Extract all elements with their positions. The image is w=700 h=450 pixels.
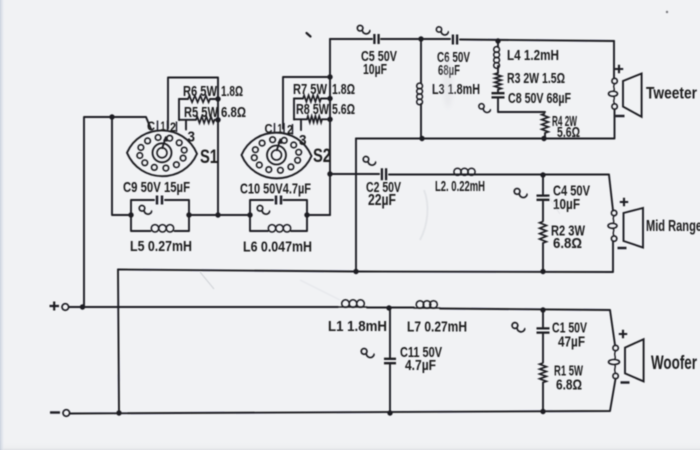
svg-text:C8 50V 68µF: C8 50V 68µF <box>508 91 571 107</box>
svg-text:R6 5W: R6 5W <box>183 84 217 100</box>
svg-text:5.6Ω: 5.6Ω <box>557 125 580 141</box>
svg-text:6.8Ω: 6.8Ω <box>556 377 582 394</box>
svg-text:L6 0.047mH: L6 0.047mH <box>243 239 312 256</box>
svg-text:Woofer: Woofer <box>651 352 697 374</box>
svg-text:6.8Ω: 6.8Ω <box>221 105 246 121</box>
svg-text:C: C <box>265 121 274 136</box>
svg-text:47µF: 47µF <box>558 334 585 351</box>
svg-text:C10 50V4.7µF: C10 50V4.7µF <box>240 181 311 198</box>
svg-text:L7 0.27mH: L7 0.27mH <box>407 319 467 336</box>
svg-text:1: 1 <box>161 119 166 134</box>
svg-text:3: 3 <box>299 132 307 149</box>
svg-text:C: C <box>147 119 156 134</box>
svg-text:S2: S2 <box>313 146 331 167</box>
svg-text:S1: S1 <box>200 147 218 168</box>
svg-text:L5 0.27mH: L5 0.27mH <box>130 238 192 255</box>
svg-text:Mid Range: Mid Range <box>646 218 700 235</box>
svg-text:R3 2W 1.5Ω: R3 2W 1.5Ω <box>507 71 565 87</box>
svg-text:R7 5W: R7 5W <box>293 82 327 98</box>
svg-text:Tweeter: Tweeter <box>646 85 697 103</box>
svg-text:6.8Ω: 6.8Ω <box>553 235 582 252</box>
svg-text:3: 3 <box>188 129 196 146</box>
svg-text:L3 1.8mH: L3 1.8mH <box>432 82 480 98</box>
svg-text:R5 5W: R5 5W <box>184 105 218 121</box>
svg-text:2: 2 <box>287 122 293 137</box>
svg-text:1.8Ω: 1.8Ω <box>221 84 243 100</box>
svg-text:2: 2 <box>170 120 176 135</box>
svg-text:5.6Ω: 5.6Ω <box>332 102 355 118</box>
svg-text:L1 1.8mH: L1 1.8mH <box>328 318 387 335</box>
svg-text:1.8Ω: 1.8Ω <box>332 82 355 98</box>
svg-text:1: 1 <box>278 121 283 136</box>
svg-text:10µF: 10µF <box>363 62 387 78</box>
svg-text:L4 1.2mH: L4 1.2mH <box>507 48 559 64</box>
svg-text:L2. 0.22mH: L2. 0.22mH <box>435 179 485 195</box>
svg-text:R8 5W: R8 5W <box>296 102 329 118</box>
svg-text:4.7µF: 4.7µF <box>405 357 436 374</box>
svg-text:22µF: 22µF <box>368 192 396 209</box>
svg-text:C9 50V 15µF: C9 50V 15µF <box>123 179 190 196</box>
